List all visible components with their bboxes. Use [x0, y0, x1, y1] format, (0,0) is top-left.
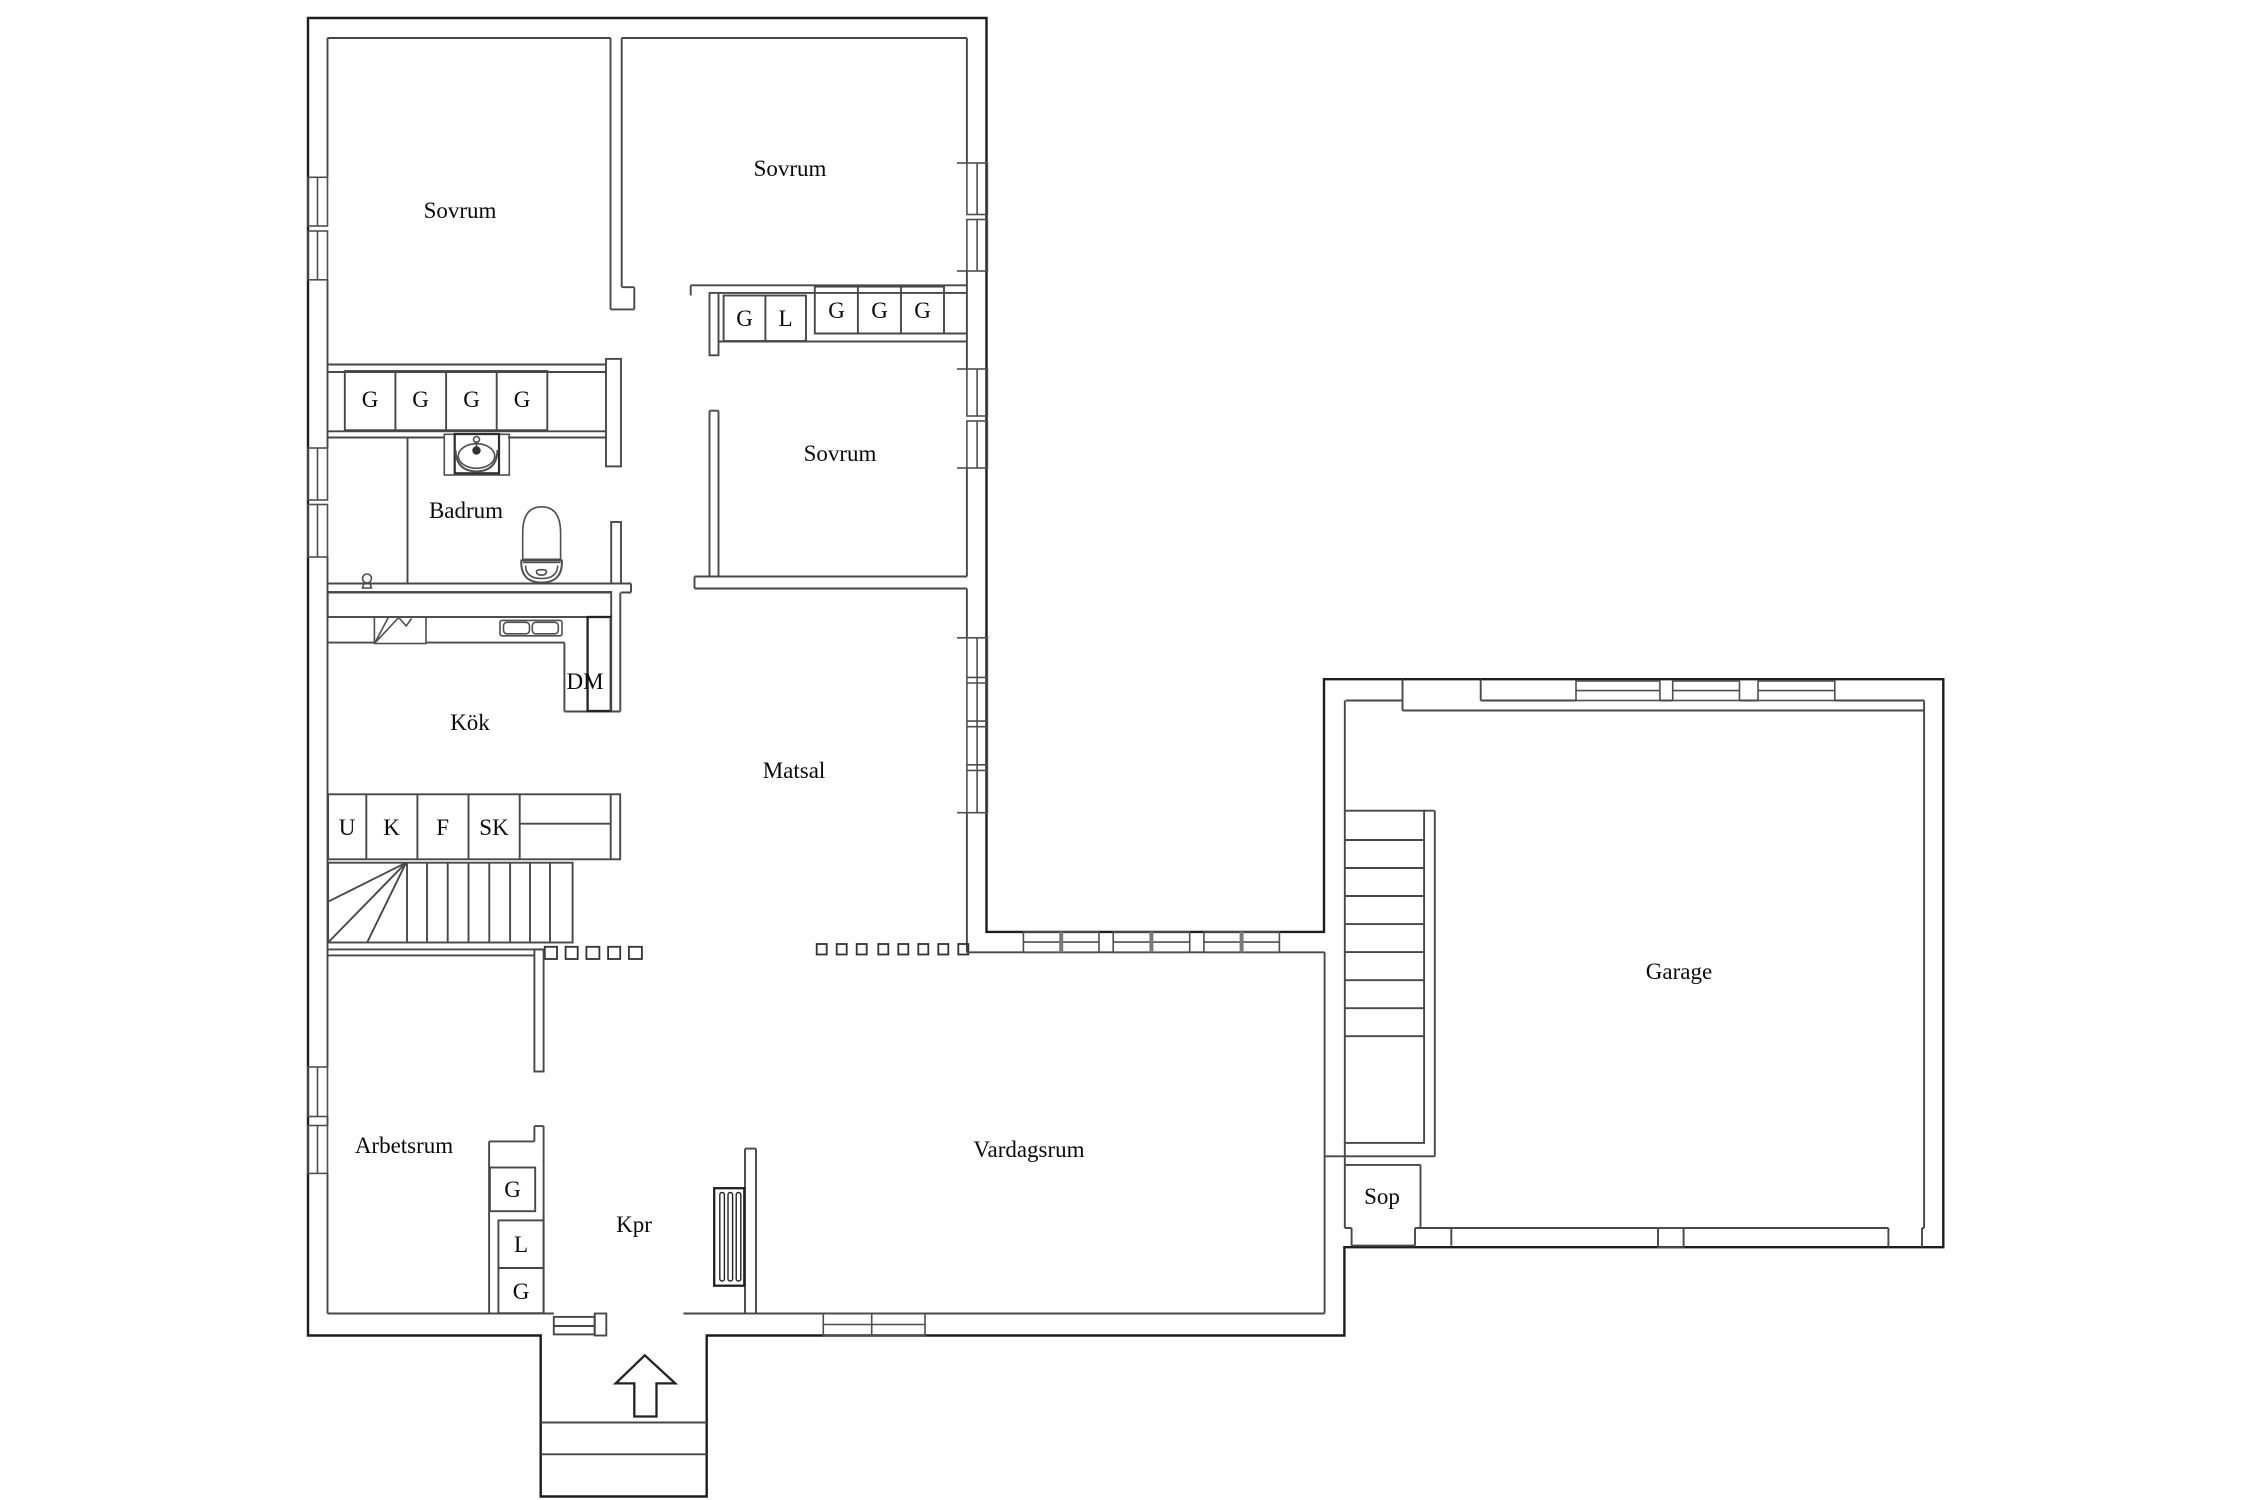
svg-text:DM: DM — [566, 669, 603, 694]
svg-text:G: G — [504, 1177, 521, 1202]
svg-text:L: L — [514, 1232, 528, 1257]
svg-text:L: L — [778, 306, 792, 331]
svg-text:Arbetsrum: Arbetsrum — [355, 1133, 453, 1158]
svg-text:Vardagsrum: Vardagsrum — [973, 1137, 1084, 1162]
svg-text:Kpr: Kpr — [616, 1212, 652, 1237]
svg-text:G: G — [362, 387, 379, 412]
svg-text:G: G — [463, 387, 480, 412]
svg-text:G: G — [914, 298, 931, 323]
svg-text:G: G — [514, 387, 531, 412]
svg-text:G: G — [513, 1279, 530, 1304]
svg-text:K: K — [383, 815, 400, 840]
svg-text:Sovrum: Sovrum — [424, 198, 497, 223]
svg-text:F: F — [436, 815, 449, 840]
svg-text:U: U — [339, 815, 356, 840]
svg-text:Sop: Sop — [1364, 1184, 1400, 1209]
svg-text:Kök: Kök — [450, 710, 490, 735]
svg-text:SK: SK — [479, 815, 509, 840]
svg-text:G: G — [871, 298, 888, 323]
svg-text:G: G — [736, 306, 753, 331]
svg-text:Sovrum: Sovrum — [804, 441, 877, 466]
svg-text:Matsal: Matsal — [763, 758, 826, 783]
svg-text:Sovrum: Sovrum — [754, 156, 827, 181]
svg-text:G: G — [412, 387, 429, 412]
svg-text:G: G — [828, 298, 845, 323]
svg-text:Badrum: Badrum — [429, 498, 503, 523]
svg-text:Garage: Garage — [1646, 959, 1712, 984]
